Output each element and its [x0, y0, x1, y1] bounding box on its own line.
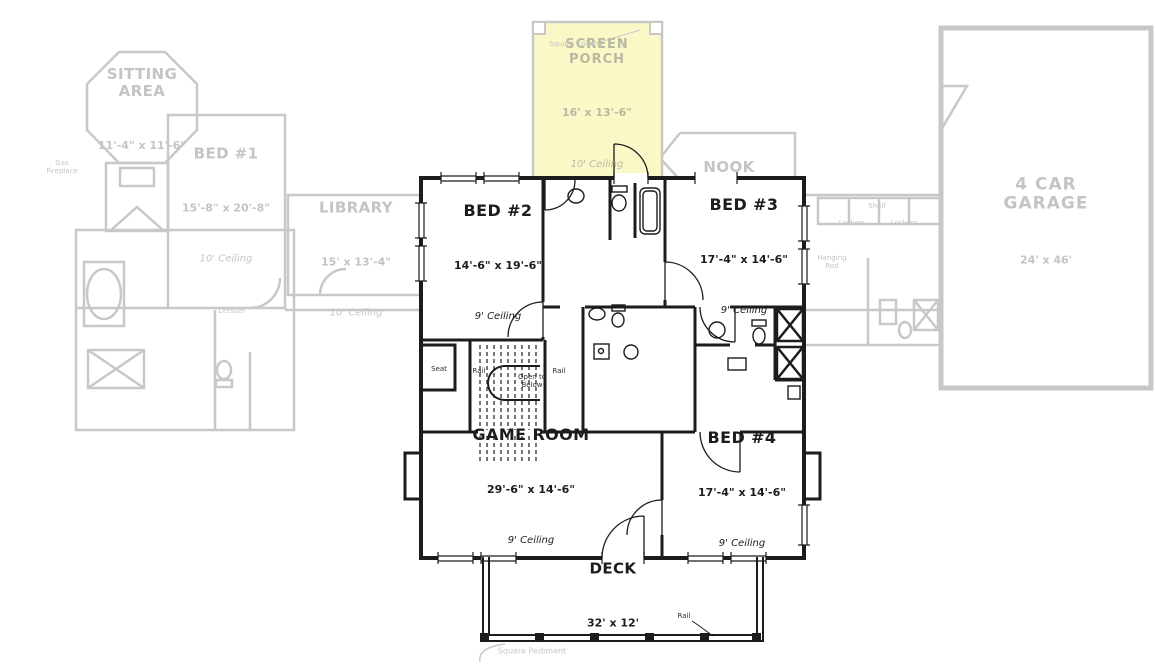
room-ceiling: 9' Ceiling: [698, 538, 786, 550]
room-ceiling: 9' Ceiling: [700, 305, 788, 317]
room-dims: 15' x 13'-4": [319, 256, 393, 269]
annotation-rail-right: Rail: [553, 367, 566, 375]
room-title: 4 CAR GARAGE: [1004, 175, 1089, 214]
room-ceiling: 10' Ceiling: [319, 308, 393, 320]
annotation-hanging-rod: Hanging Rod: [817, 254, 846, 270]
room-label-screen-porch: SCREEN PORCH 16' x 13'-6" 10' Ceiling: [562, 1, 632, 189]
room-label-garage: 4 CAR GARAGE 24' x 46': [1004, 139, 1089, 286]
room-title: LIBRARY: [319, 199, 393, 216]
room-dims: 15'-8" x 20'-8": [182, 202, 270, 215]
room-label-bed4: BED #4 17'-4" x 14'-6" 9' Ceiling: [698, 392, 786, 568]
room-dims: 24' x 46': [1004, 254, 1089, 267]
annotation-seat: Seat: [431, 365, 447, 373]
room-label-bed2: BED #2 14'-6" x 19'-6" 9' Ceiling: [454, 165, 542, 341]
annotation-square-pediment: Square Pediment: [498, 646, 566, 655]
room-label-bed1: BED #1 15'-8" x 20'-8" 10' Ceiling: [182, 108, 270, 283]
room-dims: 32' x 12': [587, 617, 639, 630]
annotation-dresser: Dresser: [219, 307, 246, 315]
room-title: DECK: [587, 560, 639, 577]
room-dims: 17'-4" x 14'-6": [700, 254, 788, 267]
annotation-fireplace: Gas Fireplace: [46, 159, 77, 175]
annotation-lockers-left: Lockers: [839, 219, 866, 227]
room-title: BED #3: [700, 196, 788, 214]
annotation-rail-left: Rail: [473, 367, 486, 375]
room-title: SITTING AREA: [98, 66, 186, 101]
annotation-square-column: Square Column: [549, 40, 603, 48]
annotation-deck-rail: Rail: [678, 612, 691, 620]
room-label-sitting-area: SITTING AREA 11'-4" x 11'-6": [98, 29, 186, 171]
floor-plan-page: SITTING AREA 11'-4" x 11'-6" BED #1 15'-…: [0, 0, 1155, 664]
annotation-lockers-right: Lockers: [891, 219, 918, 227]
room-dims: 17'-4" x 14'-6": [698, 487, 786, 500]
room-label-bed3: BED #3 17'-4" x 14'-6" 9' Ceiling: [700, 159, 788, 335]
room-dims: 29'-6" x 14'-6": [473, 484, 590, 497]
room-dims: 16' x 13'-6": [562, 108, 632, 121]
annotation-open-to-below: Open to Below: [518, 373, 546, 389]
room-title: GAME ROOM: [473, 426, 590, 444]
room-label-deck: DECK 32' x 12': [587, 524, 639, 649]
room-title: BED #1: [182, 145, 270, 162]
room-label-game-room: GAME ROOM 29'-6" x 14'-6" 9' Ceiling: [473, 389, 590, 565]
room-label-library: LIBRARY 15' x 13'-4" 10' Ceiling: [319, 162, 393, 337]
room-ceiling: 10' Ceiling: [182, 254, 270, 266]
room-dims: 14'-6" x 19'-6": [454, 260, 542, 273]
room-ceiling: 9' Ceiling: [473, 535, 590, 547]
room-ceiling: 10' Ceiling: [562, 159, 632, 171]
room-ceiling: 9' Ceiling: [454, 311, 542, 323]
annotation-shelf: Shelf: [868, 202, 886, 210]
room-title: BED #2: [454, 202, 542, 220]
room-dims: 11'-4" x 11'-6": [98, 140, 186, 153]
room-title: BED #4: [698, 429, 786, 447]
